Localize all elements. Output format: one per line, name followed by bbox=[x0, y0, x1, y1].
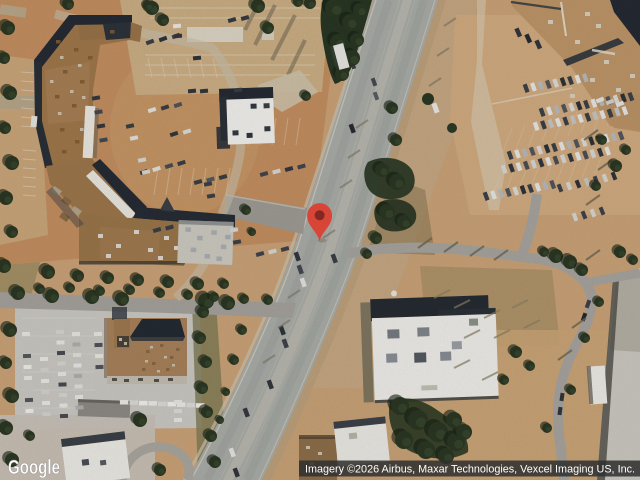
svg-text:Imagery ©2026 Airbus, Maxar Te: Imagery ©2026 Airbus, Maxar Technologies… bbox=[305, 464, 635, 476]
svg-text:Google: Google bbox=[8, 457, 60, 479]
